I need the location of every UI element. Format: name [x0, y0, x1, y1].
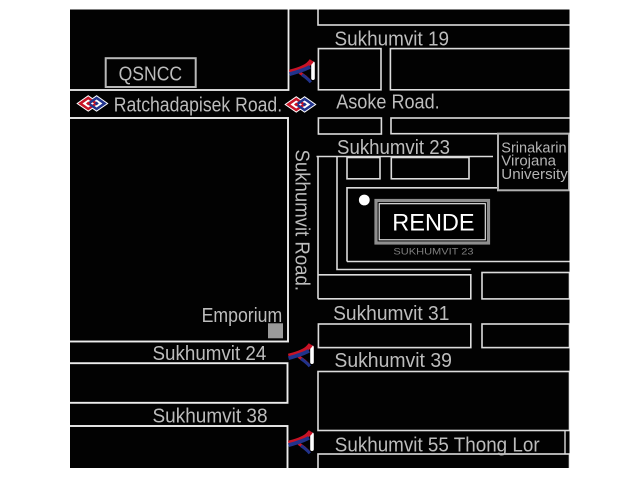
svg-text:Sukhumvit 31: Sukhumvit 31 — [333, 303, 449, 325]
svg-text:Asoke Road.: Asoke Road. — [336, 92, 440, 114]
svg-text:Sukhumvit 55 Thong Lor: Sukhumvit 55 Thong Lor — [335, 435, 540, 457]
svg-text:RENDE: RENDE — [392, 210, 474, 237]
svg-text:Ratchadapisek Road.: Ratchadapisek Road. — [114, 95, 282, 117]
svg-text:SUKHUMVIT 23: SUKHUMVIT 23 — [393, 247, 473, 257]
svg-text:QSNCC: QSNCC — [119, 64, 183, 86]
svg-text:Sukhumvit 19: Sukhumvit 19 — [335, 28, 450, 50]
svg-text:Sukhumvit Road.: Sukhumvit Road. — [291, 150, 313, 292]
svg-text:Sukhumvit 38: Sukhumvit 38 — [153, 406, 268, 428]
svg-text:Sukhumvit 39: Sukhumvit 39 — [334, 350, 452, 372]
svg-text:Sukhumvit 24: Sukhumvit 24 — [153, 343, 267, 365]
svg-text:University: University — [501, 167, 568, 183]
svg-text:Sukhumvit 23: Sukhumvit 23 — [337, 137, 450, 159]
